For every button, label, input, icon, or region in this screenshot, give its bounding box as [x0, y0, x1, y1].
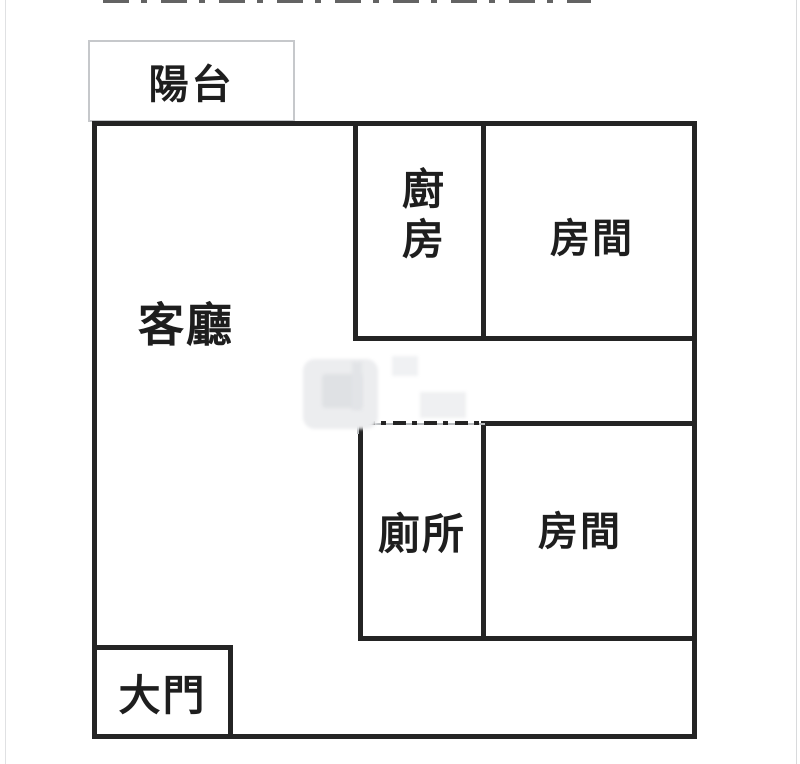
cropped-text-remnant: [103, 0, 591, 3]
wall-toilet-bedroom-divider: [481, 421, 486, 641]
watermark-blob: [420, 392, 466, 418]
canvas-edge-left: [5, 0, 6, 764]
watermark-blob: [352, 362, 362, 410]
watermark-blob: [392, 356, 418, 376]
wall-bottom-block-bottom: [358, 636, 692, 641]
canvas-edge-right: [796, 0, 797, 764]
wall-bedroom-bottom-top: [486, 421, 692, 426]
room-label-kitchen: 廚房: [390, 167, 451, 267]
room-label-main-door: 大門: [118, 662, 206, 723]
room-label-balcony: 陽台: [149, 52, 235, 110]
room-label-bedroom-bottom: 房間: [538, 499, 622, 557]
room-label-living-room: 客廳: [138, 289, 234, 355]
watermark: [295, 350, 495, 435]
wall-toilet-left: [358, 425, 363, 641]
floorplan-canvas: 陽台 大門 客廳 廚房 房間 廁所 房間: [0, 0, 800, 764]
room-label-toilet: 廁所: [378, 501, 466, 562]
room-main-door: 大門: [92, 645, 233, 739]
wall-kitchen-left: [353, 126, 358, 341]
wall-kitchen-bedroom-divider: [481, 126, 486, 341]
room-label-bedroom-top: 房間: [550, 206, 634, 264]
room-balcony: 陽台: [88, 40, 295, 122]
wall-top-block-bottom: [353, 336, 692, 341]
